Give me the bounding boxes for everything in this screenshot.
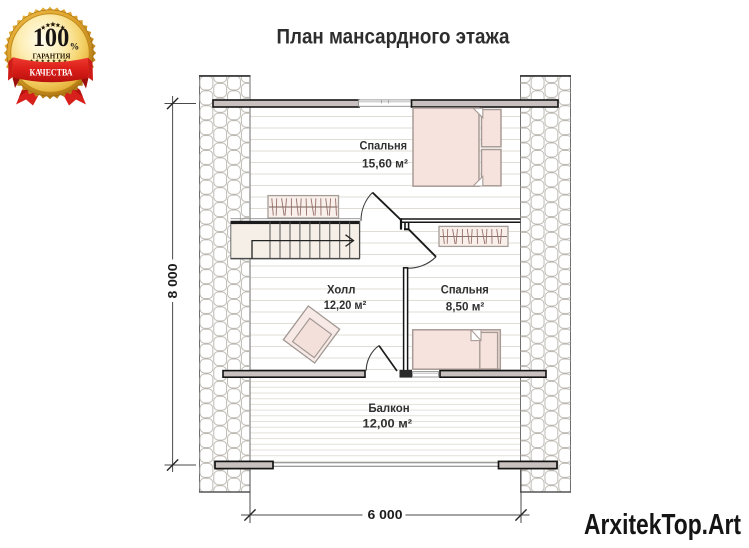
svg-text:Балкон: Балкон — [368, 402, 409, 415]
svg-text:Спальня: Спальня — [360, 140, 408, 153]
svg-text:15,60 м²: 15,60 м² — [362, 156, 408, 170]
svg-text:План мансардного этажа: План мансардного этажа — [277, 26, 510, 49]
svg-text:6 000: 6 000 — [368, 507, 403, 522]
svg-text:Холл: Холл — [327, 283, 356, 296]
svg-text:12,00 м²: 12,00 м² — [363, 417, 413, 431]
svg-text:ArxitekTop.Art: ArxitekTop.Art — [584, 509, 741, 541]
svg-text:8,50 м²: 8,50 м² — [446, 299, 485, 313]
svg-text:12,20 м²: 12,20 м² — [324, 298, 367, 312]
svg-text:Спальня: Спальня — [441, 284, 489, 297]
svg-text:8 000: 8 000 — [165, 264, 180, 299]
